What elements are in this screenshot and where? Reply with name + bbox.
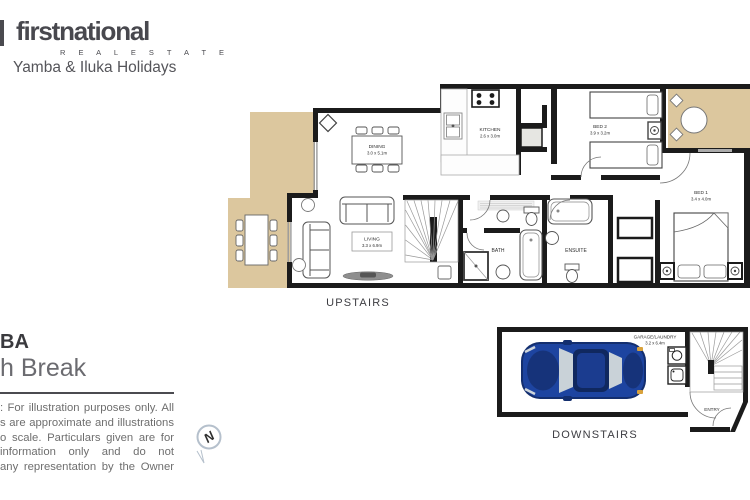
bathtub-icon — [520, 230, 542, 280]
disclaimer-line: : For illustration purposes only. All — [0, 401, 174, 416]
ensuite-basin-icon — [546, 232, 559, 245]
brand-subtitle: R E A L E S T A T E — [60, 48, 230, 57]
light-diamond-icon — [320, 115, 337, 132]
logo-mark-cut-icon — [0, 20, 4, 46]
upstairs-floorplan: DINING 3.0 x 5.1m KITCHEN 2.6 x 3.0m — [222, 80, 750, 295]
kitchen-sink-icon — [444, 113, 462, 139]
entry-label: ENTRY — [704, 407, 720, 412]
ensuite-label: ENSUITE — [565, 248, 587, 254]
brand-name: firstnational — [16, 16, 149, 47]
washing-machine-icon — [668, 347, 686, 364]
divider-line — [0, 392, 174, 394]
vanity-basin-icon — [496, 265, 510, 279]
tv-unit-icon — [343, 272, 393, 280]
disclaimer-line: information only and do not — [0, 445, 174, 460]
downstairs-label: DOWNSTAIRS — [545, 429, 645, 441]
lamp-icon — [302, 199, 315, 212]
upstairs-label: UPSTAIRS — [308, 297, 408, 309]
downstairs-floorplan: GARAGE/LAUNDRY 3.2 x 6.4m ENTRY — [495, 322, 750, 440]
linen-closet — [521, 128, 542, 147]
stairs-down-icon — [690, 332, 743, 392]
garage-label: GARAGE/LAUNDRY — [634, 335, 677, 340]
garage-dims: 3.2 x 6.4m — [645, 341, 665, 346]
dining-dims: 3.0 x 5.1m — [367, 151, 387, 156]
brand-tagline: Yamba & Iluka Holidays — [13, 59, 176, 77]
bed2-dims: 3.9 x 3.2m — [590, 131, 610, 136]
disclaimer-line: o scale. Particulars given are for — [0, 431, 174, 446]
single-bed-icon — [590, 142, 662, 168]
bath-label: BATH — [492, 248, 505, 254]
wardrobe — [618, 258, 652, 282]
ensuite-bathtub-icon — [548, 199, 592, 224]
ensuite-toilet-icon — [565, 264, 579, 283]
wc-toilet-icon — [524, 207, 539, 226]
kitchen-label: KITCHEN — [479, 127, 501, 133]
outdoor-dining-table — [236, 215, 277, 265]
living-label-box: LIVING 3.3 x 6.9m — [352, 232, 392, 251]
living-dims: 3.3 x 6.9m — [362, 243, 382, 248]
lamp-icon — [293, 259, 306, 272]
disclaimer-line: s are approximate and illustrations — [0, 416, 174, 431]
laundry-tub-icon — [668, 366, 686, 384]
bedside-table — [728, 263, 742, 279]
sofa-vertical — [303, 222, 330, 278]
living-label: LIVING — [364, 237, 380, 243]
shower-icon — [464, 252, 488, 280]
compass-icon: N — [188, 420, 232, 466]
property-subtitle-fragment: h Break — [0, 354, 86, 383]
floorplan-page: firstnational R E A L E S T A T E Yamba … — [0, 0, 750, 500]
car-icon — [521, 340, 646, 401]
disclaimer-line: any representation by the Owner — [0, 460, 174, 475]
disclaimer: : For illustration purposes only. All s … — [0, 401, 174, 475]
bed1-dims: 3.4 x 4.0m — [691, 197, 711, 202]
bed1-label: BED 1 — [694, 190, 708, 196]
wardrobe — [618, 218, 652, 238]
side-table — [438, 266, 451, 279]
stove-icon — [472, 90, 499, 107]
bed2-label: BED 2 — [593, 124, 607, 130]
wc-basin-icon — [497, 210, 509, 222]
kitchen-dims: 2.6 x 3.0m — [480, 134, 500, 139]
double-bed-icon — [674, 213, 728, 281]
bedside-table — [648, 122, 661, 139]
sofa-horizontal — [340, 197, 394, 224]
property-title-fragment: BA — [0, 331, 29, 354]
bedside-table — [660, 263, 674, 279]
single-bed-icon — [590, 92, 662, 118]
dining-label: DINING — [369, 144, 386, 150]
